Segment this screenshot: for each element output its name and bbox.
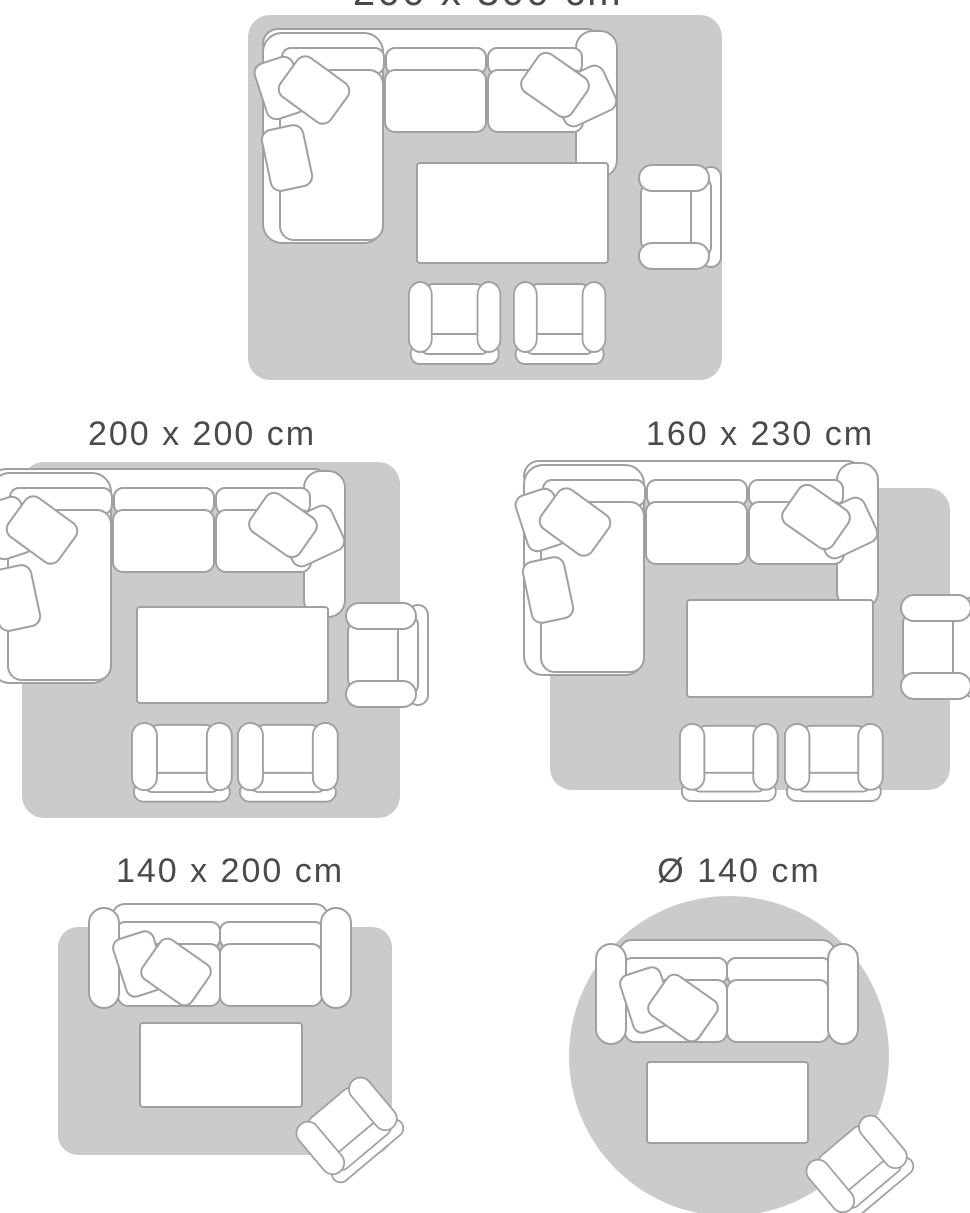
diagram-140x200-cm	[30, 890, 450, 1213]
coffee-table	[647, 1062, 808, 1143]
coffee-table	[140, 1023, 302, 1107]
two-seat-sofa	[89, 904, 351, 1009]
armchair-right	[901, 595, 970, 699]
size-label-200x200: 200 x 200 cm	[88, 414, 316, 454]
two-seat-sofa	[596, 940, 858, 1045]
diagram-200x300-cm	[240, 0, 730, 390]
diagram-round-140-cm	[545, 890, 970, 1213]
club-chair-right	[785, 724, 883, 801]
size-label-140x200: 140 x 200 cm	[116, 851, 344, 891]
rug-size-guide: 200 x 300 cm 200 x 200 cm 160 x 230 cm 1…	[0, 0, 970, 1213]
club-chair-right	[514, 282, 606, 364]
armchair-right	[346, 603, 428, 707]
coffee-table	[137, 607, 328, 703]
diagram-160x230-cm	[510, 455, 970, 840]
diagram-200x200-cm	[0, 455, 440, 835]
size-label-160x230: 160 x 230 cm	[646, 414, 874, 454]
armchair-right	[639, 165, 721, 269]
club-chair-left	[132, 723, 232, 802]
club-chair-left	[409, 282, 501, 364]
coffee-table	[417, 163, 608, 263]
size-label-d140: Ø 140 cm	[657, 851, 820, 891]
club-chair-left	[680, 724, 778, 801]
club-chair-right	[238, 723, 338, 802]
coffee-table	[687, 600, 873, 697]
